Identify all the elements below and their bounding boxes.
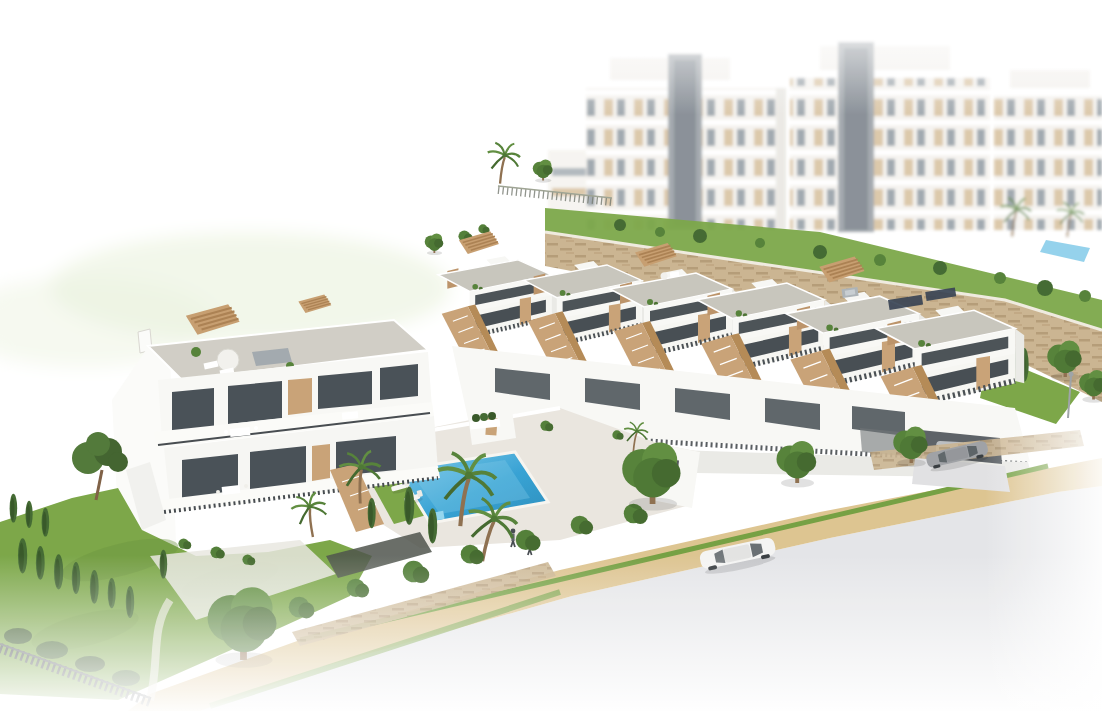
scene-svg — [0, 0, 1102, 711]
edge-fades — [0, 0, 1102, 711]
render-canvas — [0, 0, 1102, 711]
global-veil — [0, 0, 1102, 711]
